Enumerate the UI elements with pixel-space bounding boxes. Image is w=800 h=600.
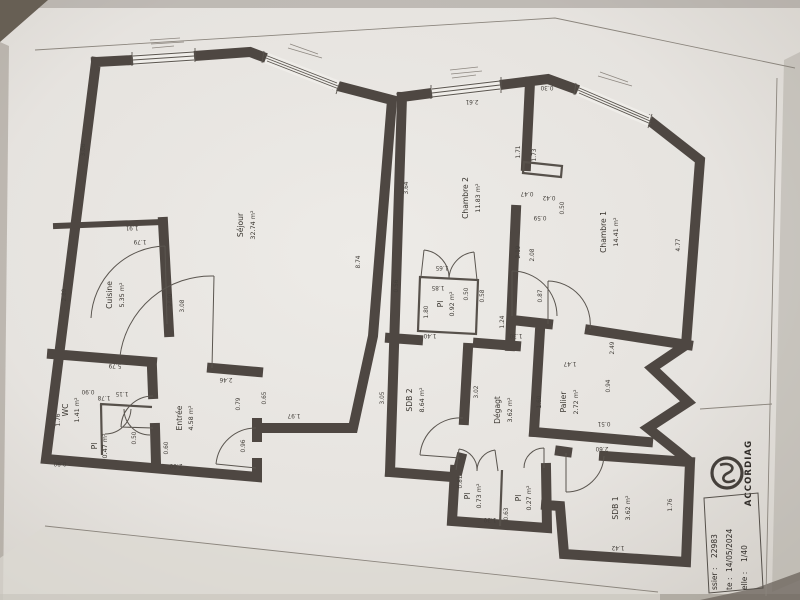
dim-label: 2.19 <box>516 245 522 258</box>
dim-label: 0.50 <box>464 287 470 300</box>
room-area-cuisine: 5.35 m² <box>118 282 126 307</box>
photographed-floor-plan: Séjour 32.74 m² Cuisine 5.35 m² Entrée 4… <box>0 0 800 600</box>
room-area-chambre1: 14.41 m² <box>612 217 620 247</box>
titleblock-field-value: 14/05/2024 <box>725 529 734 572</box>
dim-label: 0.60 <box>164 441 170 454</box>
room-label-pl027: Pl <box>514 495 523 502</box>
dim-label: 0.42 <box>542 194 555 200</box>
room-area-degagt: 3.62 m² <box>506 397 514 422</box>
room-label-pl: Pl <box>90 443 99 450</box>
dim-label: 1.79 <box>133 238 146 244</box>
room-area-palier: 2.72 m² <box>572 389 580 414</box>
dim-label: 8.74 <box>356 255 362 268</box>
room-label-palier: Palier <box>559 391 568 413</box>
titleblock-field-label: te : <box>725 578 734 590</box>
dim-label: 2.61 <box>465 98 478 104</box>
dim-label: 0.30 <box>540 84 553 90</box>
room-label-degagt: Dégagt <box>493 396 502 424</box>
dim-label: 2.00 <box>169 462 182 468</box>
floor-plan-svg: Séjour 32.74 m² Cuisine 5.35 m² Entrée 4… <box>0 0 800 600</box>
dim-label: 0.50 <box>560 201 566 214</box>
room-label-entree: Entrée <box>175 405 184 430</box>
dim-label: 0.87 <box>538 289 544 302</box>
dim-label: 0.63 <box>504 507 510 520</box>
dim-label: 1.76 <box>668 498 674 511</box>
dim-label: 2.49 <box>610 341 616 354</box>
dim-label: 1.80 <box>424 305 430 318</box>
dim-label: 0.96 <box>241 439 247 452</box>
dim-label: 0.59 <box>533 214 546 220</box>
room-label-chambre2: Chambre 2 <box>461 177 470 219</box>
dim-label: 3.06 <box>81 143 87 156</box>
room-area-pl073: 0.73 m² <box>475 483 483 508</box>
dim-label: 0.90 <box>81 388 94 394</box>
dim-label: 0.51 <box>597 420 610 426</box>
dim-label: 1.30 <box>509 332 522 338</box>
room-label-sejour: Séjour <box>236 212 245 237</box>
room-label-cuisine: Cuisine <box>105 281 114 309</box>
titleblock-field-value: 22983 <box>710 534 719 558</box>
dim-label: 1.76 <box>56 413 62 426</box>
dim-label: 1.30 <box>483 516 496 522</box>
dim-label: 2.89 <box>62 288 68 301</box>
dim-label: 1.15 <box>115 390 128 396</box>
room-area-pl: 0.47 m² <box>101 433 109 458</box>
room-label-pl073: Pl <box>463 493 472 500</box>
dim-label: 1.40 <box>423 332 436 338</box>
dim-label: 1.78 <box>97 394 110 400</box>
dim-label: 2.08 <box>530 248 536 261</box>
dim-label: 1.73 <box>532 148 538 161</box>
dim-label: 3.05 <box>380 391 386 404</box>
dim-label: 0.47 <box>520 190 533 196</box>
dim-label: 0.80 <box>53 460 66 466</box>
room-label-wc: WC <box>61 404 70 417</box>
dim-label: 2.60 <box>595 445 608 451</box>
dim-label: 3.08 <box>180 299 186 312</box>
dim-label: 1.85 <box>431 284 444 290</box>
dim-label: 1.71 <box>516 145 522 158</box>
titleblock-field-value: 1/40 <box>740 545 749 562</box>
room-label-chambre1: Chambre 1 <box>599 211 608 253</box>
titleblock-field-label: ssier : <box>710 567 719 590</box>
dim-label: 0.81 <box>458 475 464 488</box>
dim-label: 0.58 <box>480 289 486 302</box>
dim-label: 1.65 <box>435 264 448 270</box>
dim-label: 1.97 <box>287 412 300 418</box>
dim-label: 2.46 <box>219 376 232 382</box>
brand-name: ACCORDIAG <box>744 440 754 507</box>
room-label-sdb2: SDB 2 <box>405 388 414 411</box>
room-area-pl092: 0.92 m² <box>448 291 456 316</box>
dim-label: 0.56 <box>394 279 400 292</box>
room-area-sejour: 32.74 m² <box>249 210 257 240</box>
room-area-entree: 4.58 m² <box>187 405 195 430</box>
photo-top-edge <box>0 0 800 8</box>
dim-label: 0.65 <box>262 391 268 404</box>
dim-label: 0.50 <box>132 431 138 444</box>
dim-label: 1.60 <box>537 395 543 408</box>
room-area-chambre2: 11.83 m² <box>474 183 482 213</box>
dim-label: 5.79 <box>108 362 121 368</box>
room-area-sdb1: 3.62 m² <box>624 495 632 520</box>
dim-label: 0.94 <box>606 379 612 392</box>
room-area-wc: 1.41 m² <box>73 397 81 422</box>
room-label-sdb1: SDB 1 <box>611 496 620 519</box>
room-label-pl092: Pl <box>436 301 445 308</box>
dim-label: 1.42 <box>611 544 624 550</box>
dim-label: 1.47 <box>563 360 576 366</box>
room-area-sdb2: 8.64 m² <box>418 387 426 412</box>
level1-walls-medium <box>56 222 163 226</box>
dim-label: 3.64 <box>404 181 410 194</box>
dim-label: 1.24 <box>500 315 506 328</box>
titleblock-field-label: elle : <box>740 572 749 590</box>
dim-label: 2.90 <box>168 293 174 306</box>
dim-label: 1.91 <box>125 224 138 230</box>
dim-label: 3.02 <box>474 385 480 398</box>
dim-label: 4.77 <box>676 238 682 251</box>
dim-label: 0.79 <box>236 397 242 410</box>
room-area-pl027: 0.27 m² <box>525 485 533 510</box>
